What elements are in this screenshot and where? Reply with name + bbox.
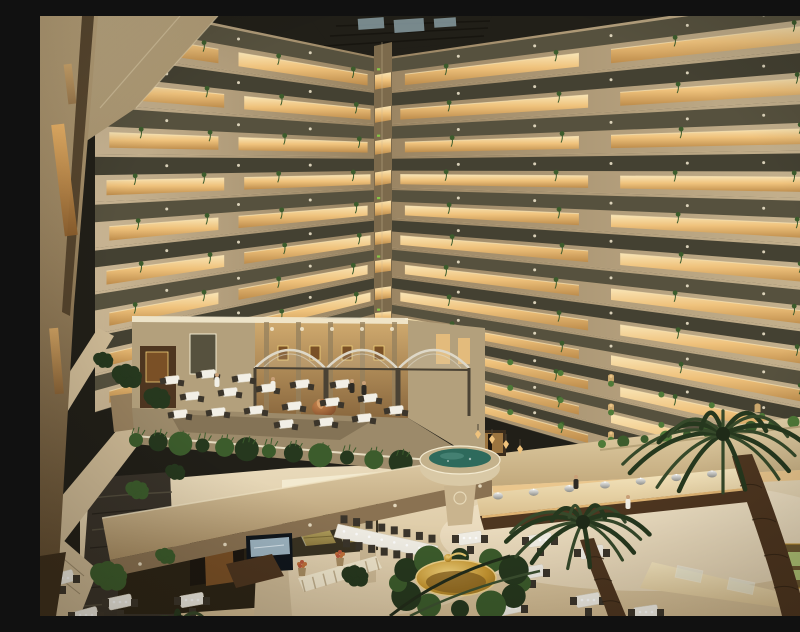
plant (138, 482, 147, 491)
chair (393, 550, 400, 558)
chair (341, 515, 348, 523)
lit-doorway (608, 403, 614, 410)
armchair (198, 396, 205, 403)
balcony-planter-hedge (507, 409, 513, 415)
chair (403, 529, 410, 537)
armchair (256, 386, 263, 393)
water-sparkle (447, 460, 449, 462)
restaurant-table (278, 419, 294, 429)
dish-handle (497, 492, 499, 494)
corner-cove-light (375, 106, 391, 123)
chair (452, 535, 459, 543)
downlight (165, 164, 168, 167)
exit-sign (377, 197, 380, 199)
chair (381, 548, 388, 556)
downlight (686, 245, 689, 248)
mirror (190, 334, 216, 374)
flower-urn (336, 558, 344, 566)
person (271, 381, 276, 391)
downlight (237, 241, 240, 244)
place-setting (475, 537, 478, 540)
balcony-planter-hedge (658, 391, 664, 397)
armchair (168, 412, 175, 419)
downlight (237, 38, 240, 41)
person-head (215, 373, 219, 377)
downlight (533, 268, 536, 271)
dish-handle (640, 478, 642, 480)
downlight (762, 114, 765, 117)
chair (628, 609, 635, 616)
chair (481, 535, 488, 543)
downlight (309, 296, 312, 299)
restaurant-table (324, 397, 340, 407)
dried-flowers (336, 554, 340, 558)
downlight (686, 117, 689, 120)
dish-handle (533, 489, 535, 491)
place-setting (185, 599, 188, 602)
balcony-planter-hedge (608, 410, 614, 416)
terrace-hedge-plant (129, 433, 143, 447)
flower-urn (298, 568, 306, 576)
chair (467, 546, 474, 554)
balcony-planter-hedge (558, 423, 564, 429)
downlight (610, 34, 613, 37)
planter-hedge (598, 440, 606, 448)
person (215, 377, 220, 387)
chair (429, 535, 436, 543)
soffit-downlight (393, 504, 397, 508)
chair (585, 608, 592, 616)
plant (356, 567, 366, 577)
armchair (300, 406, 307, 413)
exit-sign (377, 135, 380, 137)
spa-bowl-pedestal (444, 484, 476, 526)
downlight (237, 311, 240, 314)
plant (158, 389, 168, 399)
armchair (338, 402, 345, 409)
downlight (533, 85, 536, 88)
downlight (686, 358, 689, 361)
armchair (292, 424, 299, 431)
downlight (533, 411, 536, 414)
chair (391, 526, 398, 534)
palm-crown-core (576, 515, 590, 529)
corner-cove-light (375, 201, 391, 216)
restaurant-table (356, 413, 372, 423)
chair (356, 542, 363, 550)
downlight (533, 234, 536, 237)
downlight (762, 370, 765, 373)
downlight (686, 391, 689, 394)
chair (353, 518, 360, 526)
dried-flowers (298, 564, 302, 568)
restaurant-table (236, 373, 252, 383)
place-setting (368, 536, 371, 539)
soffit-downlight (478, 484, 482, 488)
downlight (309, 232, 312, 235)
corner-cove-light (375, 72, 391, 89)
balcony-planter-hedge (558, 370, 564, 376)
skylight-glint (434, 17, 457, 28)
downlight (390, 327, 394, 331)
downlight (457, 319, 460, 322)
planter-hedge (617, 436, 629, 448)
armchair (232, 376, 239, 383)
armchair (352, 416, 359, 423)
soffit-downlight (308, 523, 312, 527)
downlight (762, 65, 765, 68)
skylight-glint (394, 18, 425, 33)
dish-handle (711, 470, 713, 472)
chair (521, 605, 528, 613)
armchair (320, 400, 327, 407)
place-setting (639, 611, 642, 614)
chair (73, 575, 80, 583)
corner-cove-light (375, 170, 391, 186)
downlight (610, 345, 613, 348)
armchair (186, 414, 193, 421)
person-head (350, 379, 354, 383)
restaurant-table (334, 379, 350, 389)
chair (97, 612, 104, 616)
chair (378, 524, 385, 532)
downlight (457, 55, 460, 58)
plant (104, 353, 112, 361)
place-setting (113, 601, 116, 604)
balcony-planter-hedge (608, 381, 614, 387)
downlight (686, 284, 689, 287)
downlight (165, 289, 168, 292)
downlight (165, 119, 168, 122)
armchair (290, 382, 297, 389)
armchair (224, 412, 231, 419)
place-setting (119, 601, 122, 604)
person (362, 385, 367, 395)
downlight (762, 406, 765, 409)
armchair (274, 422, 281, 429)
soffit-downlight (138, 562, 142, 566)
downlight (686, 162, 689, 165)
downlight (237, 81, 240, 84)
downlight (165, 208, 168, 211)
atrium-photograph (40, 16, 800, 616)
place-setting (406, 544, 409, 547)
downlight (686, 24, 689, 27)
armchair (402, 410, 409, 417)
downlight (165, 249, 168, 252)
dish-handle (604, 481, 606, 483)
place-setting (469, 537, 472, 540)
downlight (610, 162, 613, 165)
chair (368, 545, 375, 553)
downlight (457, 229, 460, 232)
balcony-planter-hedge (507, 359, 513, 365)
terrace-hedge-plant (262, 444, 276, 458)
restaurant-table (286, 401, 302, 411)
downlight (533, 124, 536, 127)
balcony-planter-hedge (658, 422, 664, 428)
soffit-downlight (223, 543, 227, 547)
exit-sign (377, 255, 380, 257)
armchair (160, 378, 167, 385)
armchair (282, 404, 289, 411)
armchair (250, 378, 257, 385)
armchair (376, 398, 383, 405)
plant (128, 366, 140, 378)
downlight (533, 386, 536, 389)
restaurant-table (294, 379, 310, 389)
chair (603, 549, 610, 557)
person-head (574, 475, 578, 479)
downlight (686, 322, 689, 325)
chair (343, 539, 350, 547)
water-sparkle (469, 458, 471, 460)
downlight (762, 332, 765, 335)
place-setting (587, 599, 590, 602)
downlight (610, 202, 613, 205)
place-setting (380, 538, 383, 541)
restaurant-table (388, 405, 404, 415)
downlight (457, 128, 460, 131)
balcony-planter-hedge (507, 385, 513, 391)
lit-doorway (755, 403, 761, 412)
place-setting (593, 599, 596, 602)
downlight (237, 203, 240, 206)
downlight (533, 332, 536, 335)
corner-cove-light (375, 138, 391, 154)
place-setting (393, 541, 396, 544)
exit-sign (377, 309, 380, 311)
downlight (533, 44, 536, 47)
armchair (218, 390, 225, 397)
downlight (237, 277, 240, 280)
armchair (206, 410, 213, 417)
downlight (533, 301, 536, 304)
restaurant-table (200, 369, 216, 379)
terrace-hedge-plant (195, 439, 209, 453)
place-setting (355, 533, 358, 536)
downlight (237, 123, 240, 126)
place-setting (645, 611, 648, 614)
atrium-scene (40, 16, 800, 616)
downlight (300, 327, 304, 331)
downlight (270, 327, 274, 331)
armchair (384, 408, 391, 415)
chair (102, 599, 109, 607)
downlight (309, 164, 312, 167)
place-setting (343, 530, 346, 533)
place-setting (125, 601, 128, 604)
downlight (686, 204, 689, 207)
downlight (237, 164, 240, 167)
armchair (262, 410, 269, 417)
planter-hedge (641, 435, 649, 443)
plant (166, 549, 174, 557)
skylight-glint (358, 17, 385, 30)
restaurant-table (222, 387, 238, 397)
downlight (457, 163, 460, 166)
person-head (271, 377, 275, 381)
corner-cove-light (375, 259, 391, 273)
downlight (762, 161, 765, 164)
person (626, 499, 631, 509)
chair (416, 532, 423, 540)
corner-cove-light (375, 286, 391, 300)
lit-doorway (608, 431, 614, 437)
armchair (358, 396, 365, 403)
downlight (309, 90, 312, 93)
armchair (236, 392, 243, 399)
armchair (370, 418, 377, 425)
terrace-hedge-plant (340, 450, 354, 464)
chair (574, 549, 581, 557)
balcony-planter-hedge (558, 397, 564, 403)
downlight (309, 51, 312, 54)
exit-sign (377, 68, 380, 70)
person-head (362, 381, 366, 385)
downlight (533, 359, 536, 362)
chair (117, 610, 124, 616)
plant (110, 564, 124, 578)
place-setting (651, 611, 654, 614)
person-head (626, 495, 630, 499)
restaurant-table (318, 417, 334, 427)
dish-handle (569, 485, 571, 487)
downlight (309, 265, 312, 268)
person (574, 479, 579, 489)
downlight (762, 292, 765, 295)
restaurant-table (248, 405, 264, 415)
pergola-post (468, 368, 471, 416)
restaurant-table (210, 407, 226, 417)
armchair (308, 384, 315, 391)
downlight (309, 127, 312, 130)
downlight (330, 327, 334, 331)
person (350, 383, 355, 393)
chair (131, 599, 138, 607)
chair (570, 597, 577, 605)
armchair (180, 394, 187, 401)
downlight (610, 121, 613, 124)
armchair (330, 382, 337, 389)
downlight (309, 199, 312, 202)
chair (657, 609, 664, 616)
place-setting (197, 599, 200, 602)
downlight (610, 78, 613, 81)
palm-crown-core (716, 427, 730, 441)
downlight (686, 71, 689, 74)
corner-cove-light (375, 230, 391, 245)
downlight (762, 250, 765, 253)
downlight (533, 199, 536, 202)
downlight (457, 197, 460, 200)
place-setting (581, 599, 584, 602)
chair (366, 521, 373, 529)
armchair (196, 372, 203, 379)
downlight (457, 291, 460, 294)
restaurant-table (172, 409, 188, 419)
armchair (314, 420, 321, 427)
dish-handle (676, 474, 678, 476)
armchair (332, 422, 339, 429)
place-setting (191, 599, 194, 602)
downlight (457, 260, 460, 263)
plant (176, 465, 184, 473)
downlight (533, 162, 536, 165)
chair (174, 597, 181, 605)
downlight (610, 240, 613, 243)
chair (543, 569, 550, 577)
armchair (244, 408, 251, 415)
restaurant-table (184, 391, 200, 401)
lit-doorway (608, 374, 614, 381)
balcony-planter-hedge (709, 402, 715, 408)
downlight (360, 327, 364, 331)
restaurant-table (164, 375, 180, 385)
place-setting (463, 537, 466, 540)
armchair (178, 380, 185, 387)
place-setting (67, 577, 70, 580)
water-highlight (440, 453, 464, 460)
downlight (610, 276, 613, 279)
place-setting (539, 539, 542, 542)
downlight (457, 92, 460, 95)
downlight (762, 207, 765, 210)
chair (203, 597, 210, 605)
tv-screen-image (250, 537, 290, 557)
chair (68, 612, 75, 616)
downlight (610, 312, 613, 315)
